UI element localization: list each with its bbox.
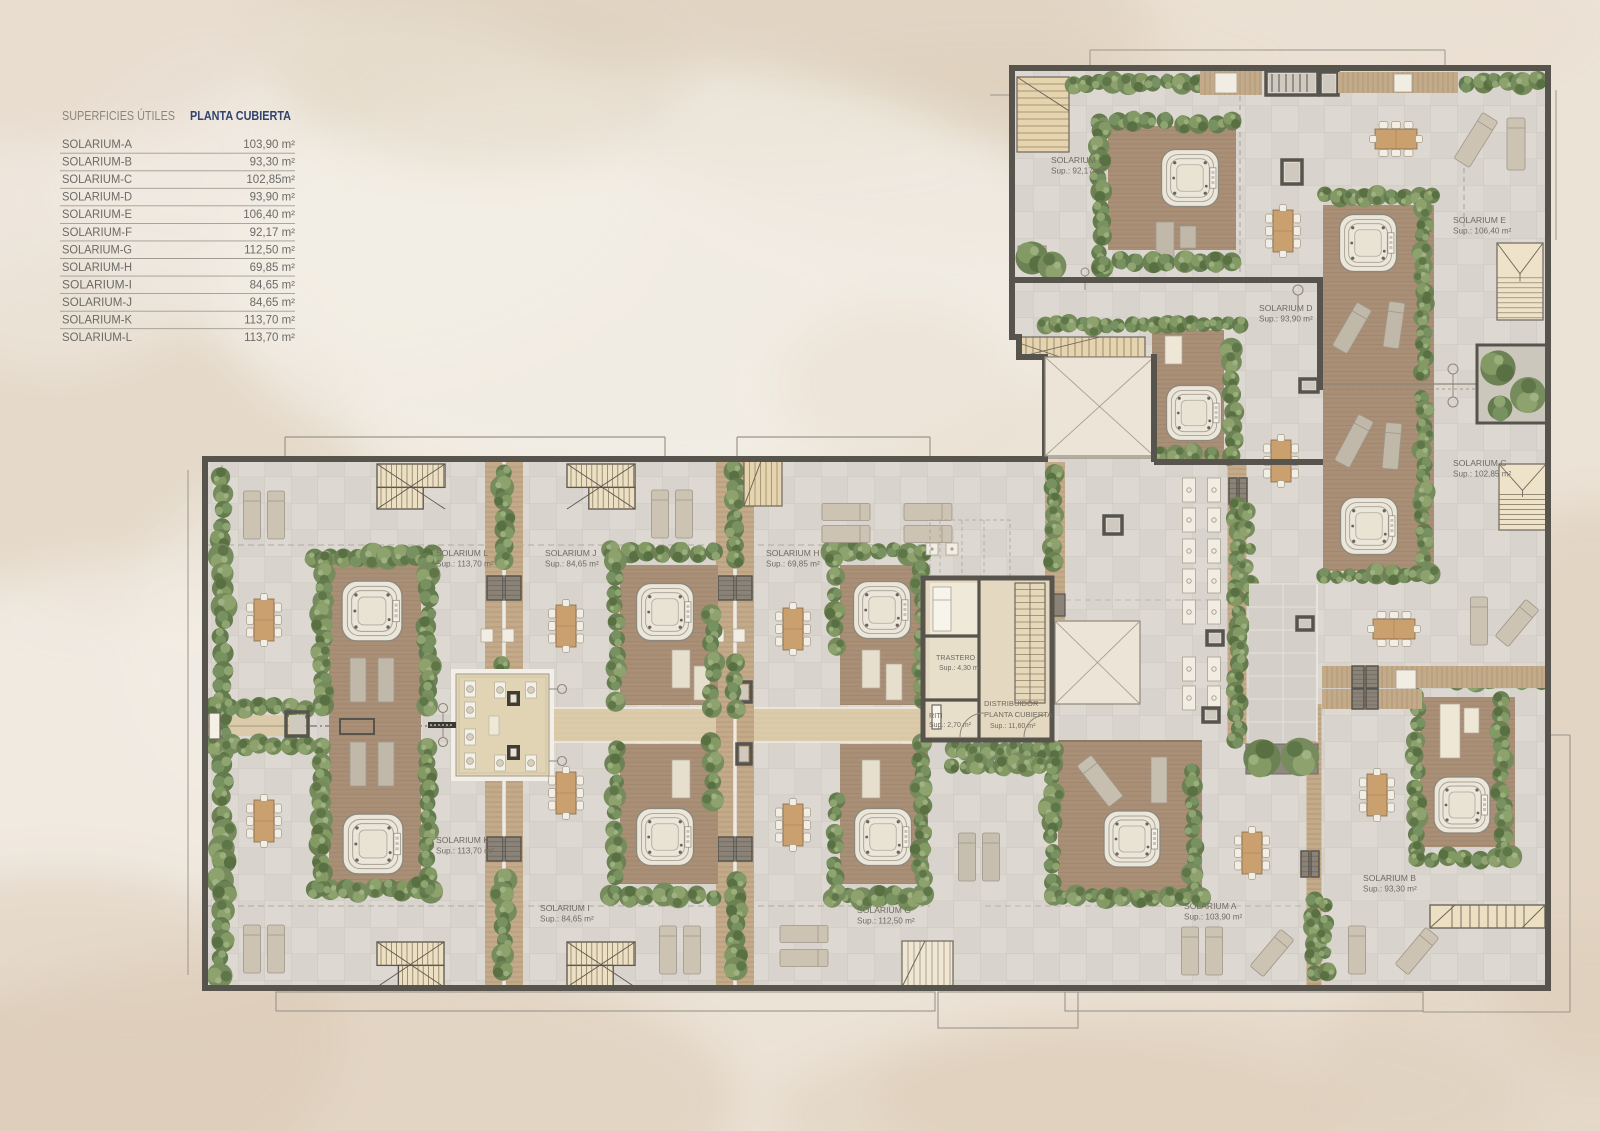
svg-text:DISTRIBUIDOR: DISTRIBUIDOR [984,699,1039,708]
svg-text:SOLARIUM B: SOLARIUM B [1363,873,1416,883]
svg-text:Sup.: 112,50 m²: Sup.: 112,50 m² [857,917,915,926]
svg-text:SOLARIUM-F: SOLARIUM-F [62,227,132,239]
svg-text:PLANTA CUBIERTA: PLANTA CUBIERTA [984,710,1053,719]
svg-text:SOLARIUM-C: SOLARIUM-C [62,174,132,186]
svg-text:113,70 m²: 113,70 m² [244,315,295,327]
svg-text:Sup.: 4,30 m²: Sup.: 4,30 m² [939,665,982,672]
svg-text:SOLARIUM L: SOLARIUM L [436,548,488,558]
svg-text:SOLARIUM C: SOLARIUM C [1453,458,1506,468]
svg-text:SOLARIUM H: SOLARIUM H [766,548,819,558]
svg-text:93,90 m²: 93,90 m² [250,192,296,204]
svg-text:TRASTERO: TRASTERO [936,653,976,662]
svg-text:84,65 m²: 84,65 m² [250,297,296,309]
svg-text:69,85 m²: 69,85 m² [250,262,296,274]
svg-text:Sup.: 102,85 m²: Sup.: 102,85 m² [1453,470,1512,479]
svg-text:SOLARIUM E: SOLARIUM E [1453,215,1506,225]
svg-text:SOLARIUM-B: SOLARIUM-B [62,157,132,169]
svg-text:Sup.: 2,70 m²: Sup.: 2,70 m² [929,722,972,729]
svg-text:84,65 m²: 84,65 m² [250,279,296,291]
svg-text:93,30 m²: 93,30 m² [250,157,296,169]
svg-text:SOLARIUM-E: SOLARIUM-E [62,209,132,221]
svg-text:Sup.: 84,65 m²: Sup.: 84,65 m² [540,915,594,924]
svg-text:92,17 m²: 92,17 m² [250,227,296,239]
svg-text:SOLARIUM J: SOLARIUM J [545,548,597,558]
svg-text:SOLARIUM-I: SOLARIUM-I [62,279,132,291]
svg-text:Sup.: 93,90 m²: Sup.: 93,90 m² [1259,315,1313,324]
svg-text:Sup.: 84,65 m²: Sup.: 84,65 m² [545,560,599,569]
svg-text:SOLARIUM-G: SOLARIUM-G [62,244,132,256]
svg-text:Sup.: 93,30 m²: Sup.: 93,30 m² [1363,885,1417,894]
svg-text:Sup.: 113,70 m²: Sup.: 113,70 m² [436,847,494,856]
svg-text:103,90 m²: 103,90 m² [243,139,295,151]
svg-text:SOLARIUM-D: SOLARIUM-D [62,192,132,204]
svg-text:SOLARIUM-J: SOLARIUM-J [62,297,132,309]
svg-text:Sup.: 103,90 m²: Sup.: 103,90 m² [1184,913,1243,922]
svg-text:Sup.: 92,17 m²: Sup.: 92,17 m² [1051,167,1105,176]
svg-text:Sup.: 11,60 m²: Sup.: 11,60 m² [990,723,1036,730]
svg-text:SOLARIUM K: SOLARIUM K [436,835,489,845]
svg-text:SOLARIUM-H: SOLARIUM-H [62,262,132,274]
svg-text:RITI: RITI [929,711,943,720]
svg-text:113,70 m²: 113,70 m² [244,332,295,344]
svg-text:112,50 m²: 112,50 m² [244,244,295,256]
svg-text:102,85m²: 102,85m² [246,174,295,186]
svg-text:Sup.: 106,40 m²: Sup.: 106,40 m² [1453,227,1512,236]
svg-text:PLANTA CUBIERTA: PLANTA CUBIERTA [190,109,291,123]
svg-text:SOLARIUM-L: SOLARIUM-L [62,332,133,344]
svg-text:SOLARIUM-K: SOLARIUM-K [62,315,132,327]
svg-text:SOLARIUM-A: SOLARIUM-A [62,139,132,151]
svg-text:SOLARIUM A: SOLARIUM A [1184,901,1237,911]
svg-text:SUPERFICIES ÚTILES: SUPERFICIES ÚTILES [62,108,175,123]
svg-text:Sup.: 113,70 m²: Sup.: 113,70 m² [436,560,494,569]
svg-text:SOLARIUM I: SOLARIUM I [540,903,590,913]
svg-text:Sup.: 69,85 m²: Sup.: 69,85 m² [766,560,820,569]
svg-text:SOLARIUM G: SOLARIUM G [857,905,911,915]
svg-text:SOLARIUM F: SOLARIUM F [1051,155,1104,165]
svg-text:SOLARIUM D: SOLARIUM D [1259,303,1312,313]
svg-text:106,40 m²: 106,40 m² [243,209,295,221]
